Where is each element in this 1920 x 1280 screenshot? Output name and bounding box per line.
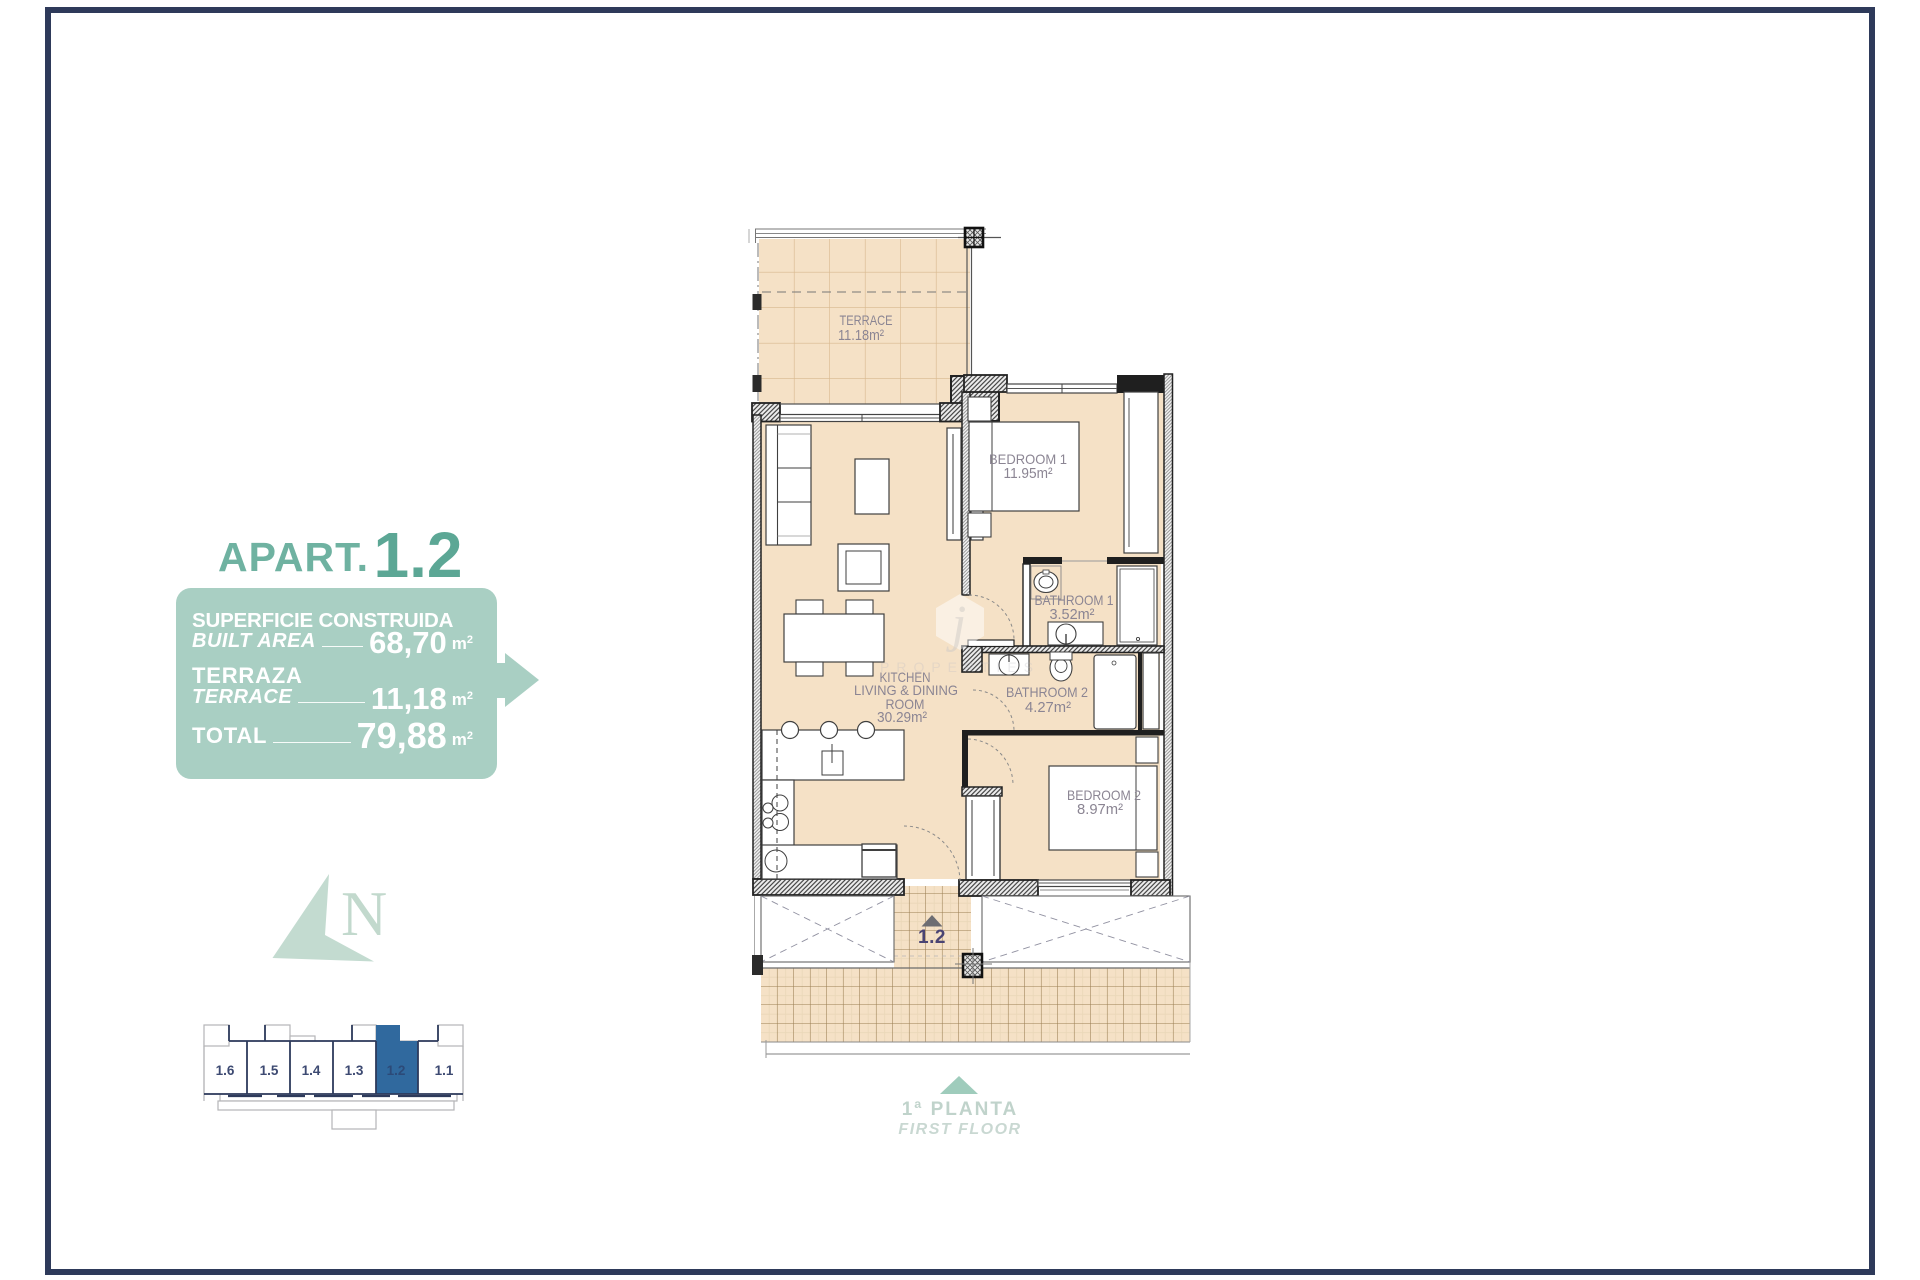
svg-text:N: N: [341, 878, 387, 949]
svg-text:BATHROOM 2: BATHROOM 2: [1006, 684, 1088, 700]
svg-text:1.3: 1.3: [345, 1063, 364, 1078]
svg-text:1.6: 1.6: [216, 1063, 235, 1078]
svg-text:1.1: 1.1: [435, 1063, 454, 1078]
svg-text:1.2: 1.2: [918, 927, 946, 948]
svg-text:30.29m²: 30.29m²: [877, 709, 927, 726]
svg-text:1.4: 1.4: [302, 1063, 321, 1078]
svg-text:4.27m²: 4.27m²: [1025, 699, 1071, 716]
svg-text:11.18m²: 11.18m²: [838, 327, 884, 344]
svg-text:TERRACE: TERRACE: [840, 312, 893, 328]
svg-text:3.52m²: 3.52m²: [1050, 606, 1095, 623]
svg-text:1.2: 1.2: [387, 1063, 406, 1078]
svg-text:1.5: 1.5: [260, 1063, 279, 1078]
svg-text:11.95m²: 11.95m²: [1004, 465, 1053, 482]
svg-text:8.97m²: 8.97m²: [1077, 801, 1123, 818]
